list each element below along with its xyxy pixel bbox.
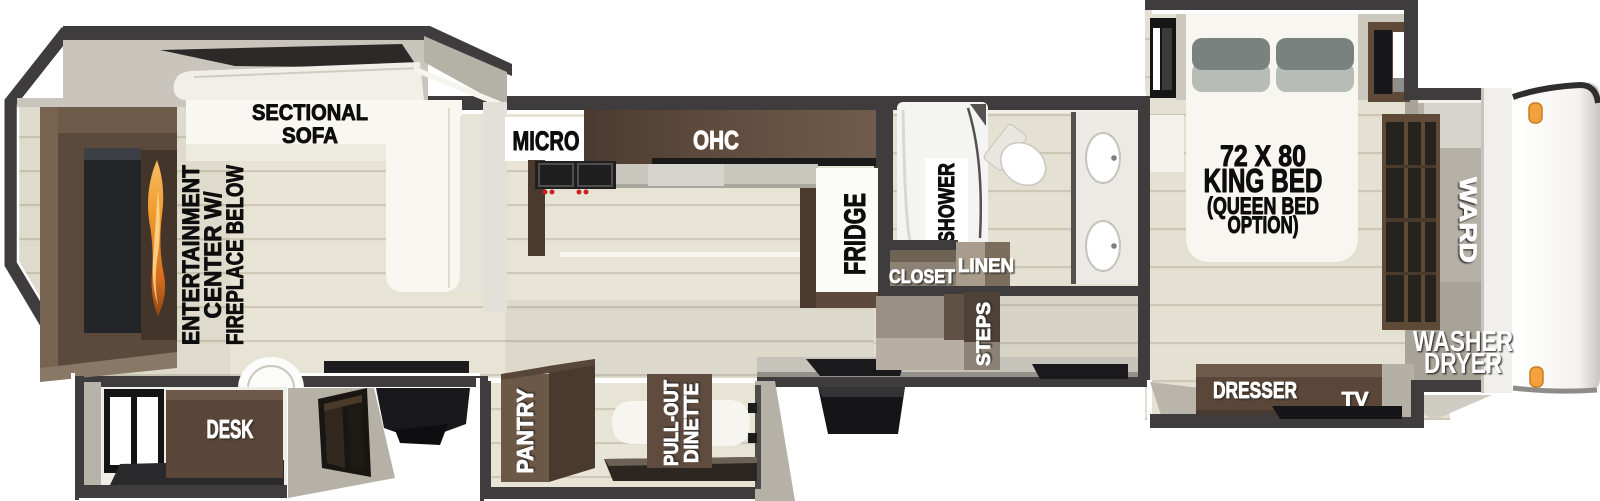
svg-text:MICRO: MICRO xyxy=(513,126,580,156)
svg-text:DINETTE: DINETTE xyxy=(681,383,703,463)
svg-text:DRESSER: DRESSER xyxy=(1213,377,1297,403)
svg-text:DESK: DESK xyxy=(207,414,254,444)
svg-text:CLOSET: CLOSET xyxy=(889,267,955,288)
svg-text:OPTION): OPTION) xyxy=(1228,212,1299,239)
svg-text:FIREPLACE BELOW: FIREPLACE BELOW xyxy=(222,165,249,345)
svg-text:SHOWER: SHOWER xyxy=(934,163,959,243)
svg-text:PULL-OUT: PULL-OUT xyxy=(661,380,683,466)
svg-text:LINEN: LINEN xyxy=(958,256,1014,277)
svg-text:SOFA: SOFA xyxy=(282,123,338,148)
svg-text:PANTRY: PANTRY xyxy=(512,389,538,474)
svg-text:DRYER: DRYER xyxy=(1424,348,1502,380)
svg-text:FRIDGE: FRIDGE xyxy=(839,193,872,275)
svg-text:SECTIONAL: SECTIONAL xyxy=(252,100,368,125)
svg-text:STEPS: STEPS xyxy=(974,302,995,366)
svg-text:OHC: OHC xyxy=(693,125,739,155)
svg-text:WARD: WARD xyxy=(1454,177,1481,263)
